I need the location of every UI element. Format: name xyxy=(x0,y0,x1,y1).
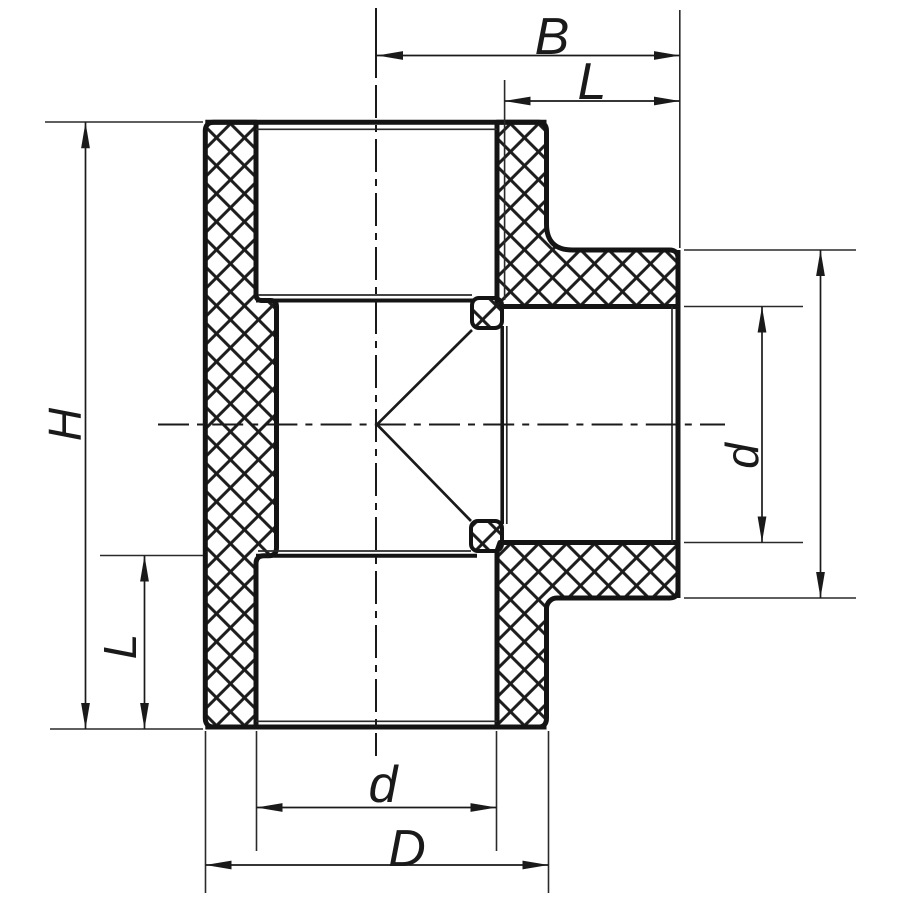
svg-text:L: L xyxy=(578,53,607,111)
svg-text:B: B xyxy=(535,8,570,66)
svg-text:d: d xyxy=(369,756,400,814)
svg-text:D: D xyxy=(388,820,426,878)
svg-text:L: L xyxy=(94,634,146,660)
svg-text:H: H xyxy=(39,407,91,441)
svg-text:d: d xyxy=(716,442,768,469)
